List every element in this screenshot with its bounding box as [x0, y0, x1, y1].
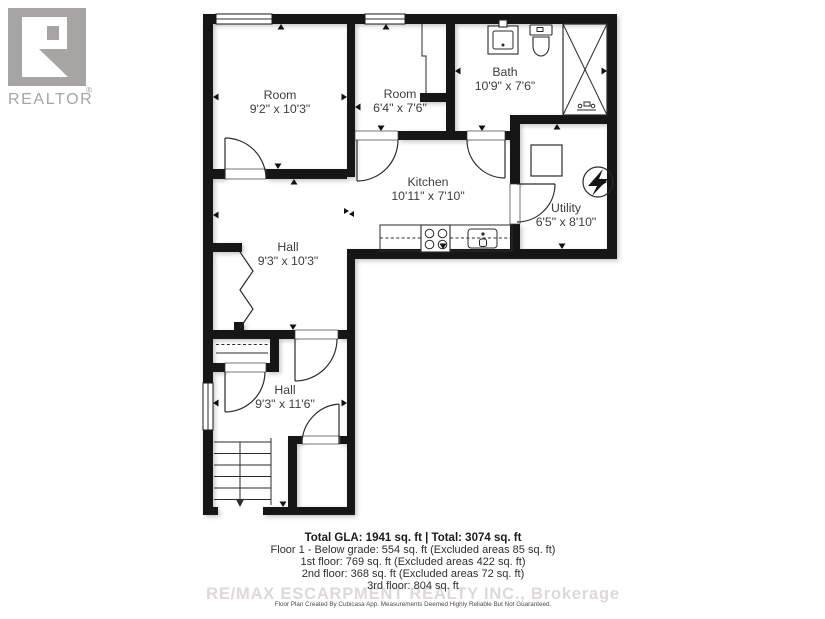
door-opening: [355, 131, 398, 140]
wall-segment: [288, 436, 297, 507]
room-dimensions: 9'2" x 10'3": [250, 102, 311, 116]
wall-segment: [266, 169, 347, 179]
staircase-down-icon: [214, 438, 271, 507]
door-opening: [225, 363, 266, 372]
realtor-logo: REALTOR ®: [8, 8, 93, 108]
stairs-down-arrow-icon: [236, 499, 244, 507]
door-bath-kitchen: [467, 140, 505, 178]
wall-chase: [422, 24, 426, 93]
room-label: Hall: [277, 240, 298, 254]
floor-area-line: 3rd floor: 804 sq. ft: [367, 580, 459, 592]
door-room2-kitchen: [357, 140, 398, 181]
stove-icon: [421, 225, 450, 252]
wall-segment: [607, 14, 617, 257]
door-opening: [467, 131, 505, 140]
room-label: Room: [264, 88, 297, 102]
floor-area-line: Floor 1 - Below grade: 554 sq. ft (Exclu…: [271, 544, 556, 556]
floor-area-line: 2nd floor: 368 sq. ft (Excluded areas 72…: [302, 568, 525, 580]
door-opening: [225, 169, 266, 179]
disclaimer: Floor Plan Created By Cubicasa App. Meas…: [275, 601, 552, 608]
wall-segment: [510, 115, 617, 124]
door-hall-lower: [295, 339, 337, 381]
wall-segment: [510, 124, 520, 184]
door-opening: [302, 436, 340, 444]
wall-segment: [203, 363, 225, 372]
closet-shelf-icon: [216, 345, 268, 354]
floor-plan-canvas: REALTOR ®: [0, 0, 825, 619]
toilet-icon: [530, 25, 552, 56]
door-opening: [510, 184, 520, 224]
wall-segment: [398, 131, 467, 140]
room-dimensions: 6'5" x 8'10": [536, 215, 597, 229]
wall-segment: [266, 363, 279, 372]
door-opening: [295, 330, 338, 339]
room-dimensions: 9'3" x 10'3": [258, 254, 319, 268]
registered-trademark-icon: ®: [86, 85, 93, 95]
floor-plan-page: REALTOR ®: [0, 0, 825, 619]
wall-segment: [203, 330, 295, 339]
wall-segment: [347, 24, 355, 177]
floor-area-line: 1st floor: 769 sq. ft (Excluded areas 42…: [300, 556, 525, 568]
total-gla-line: Total GLA: 1941 sq. ft | Total: 3074 sq.…: [305, 532, 522, 544]
shower-icon: [563, 24, 607, 115]
bathroom-sink-icon: [488, 20, 518, 54]
wall-segment: [347, 249, 355, 515]
room-dimensions: 10'9" x 7'6": [475, 79, 536, 93]
wall-segment: [340, 436, 353, 444]
room-label: Hall: [274, 383, 295, 397]
room-label: Room: [384, 87, 417, 101]
wall-segment: [203, 169, 225, 179]
room-dimensions: 6'4" x 7'6": [373, 101, 427, 115]
room-label: Kitchen: [407, 175, 448, 189]
wall-segment: [213, 243, 242, 252]
wall-segment: [203, 507, 218, 515]
room-dimensions: 10'11" x 7'10": [391, 189, 464, 203]
wall-segment: [203, 14, 213, 515]
wall-segment: [263, 507, 355, 515]
bifold-doors-icon: [240, 252, 253, 328]
room-label: Bath: [492, 65, 517, 79]
washer-icon: [531, 145, 562, 176]
wall-segment: [338, 330, 355, 339]
wall-segment: [446, 24, 455, 137]
room-dimensions: 9'3" x 11'6": [255, 397, 315, 411]
realtor-wordmark: REALTOR: [8, 91, 93, 108]
room-label: Utility: [551, 201, 582, 215]
